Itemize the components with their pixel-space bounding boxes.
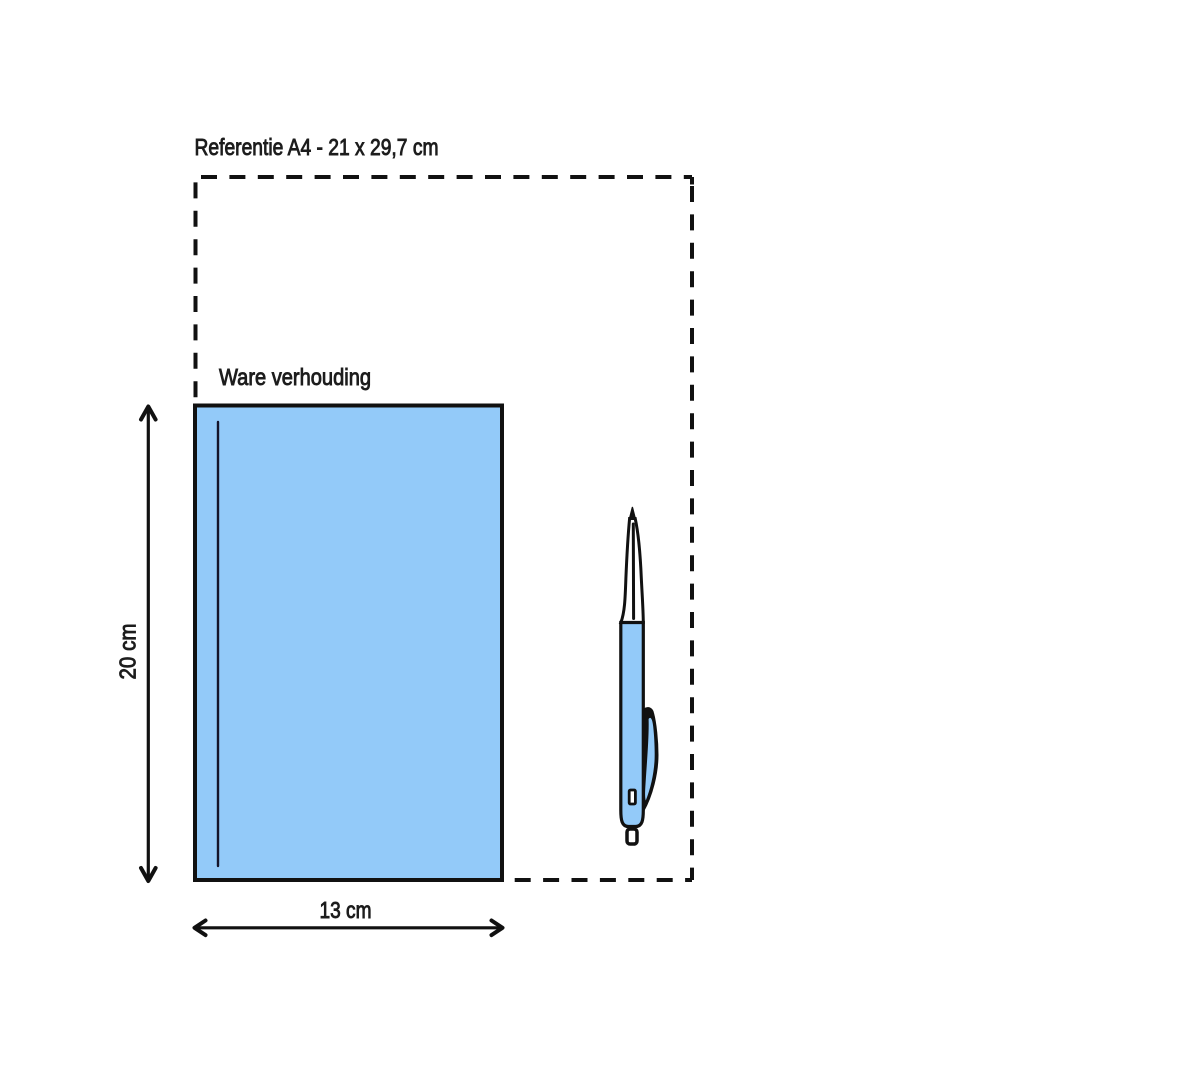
svg-text:Ware verhouding: Ware verhouding	[219, 364, 371, 390]
svg-text:13 cm: 13 cm	[320, 897, 372, 923]
svg-text:20 cm: 20 cm	[115, 624, 141, 680]
svg-text:Referentie A4 - 21 x 29,7 cm: Referentie A4 - 21 x 29,7 cm	[195, 134, 439, 160]
